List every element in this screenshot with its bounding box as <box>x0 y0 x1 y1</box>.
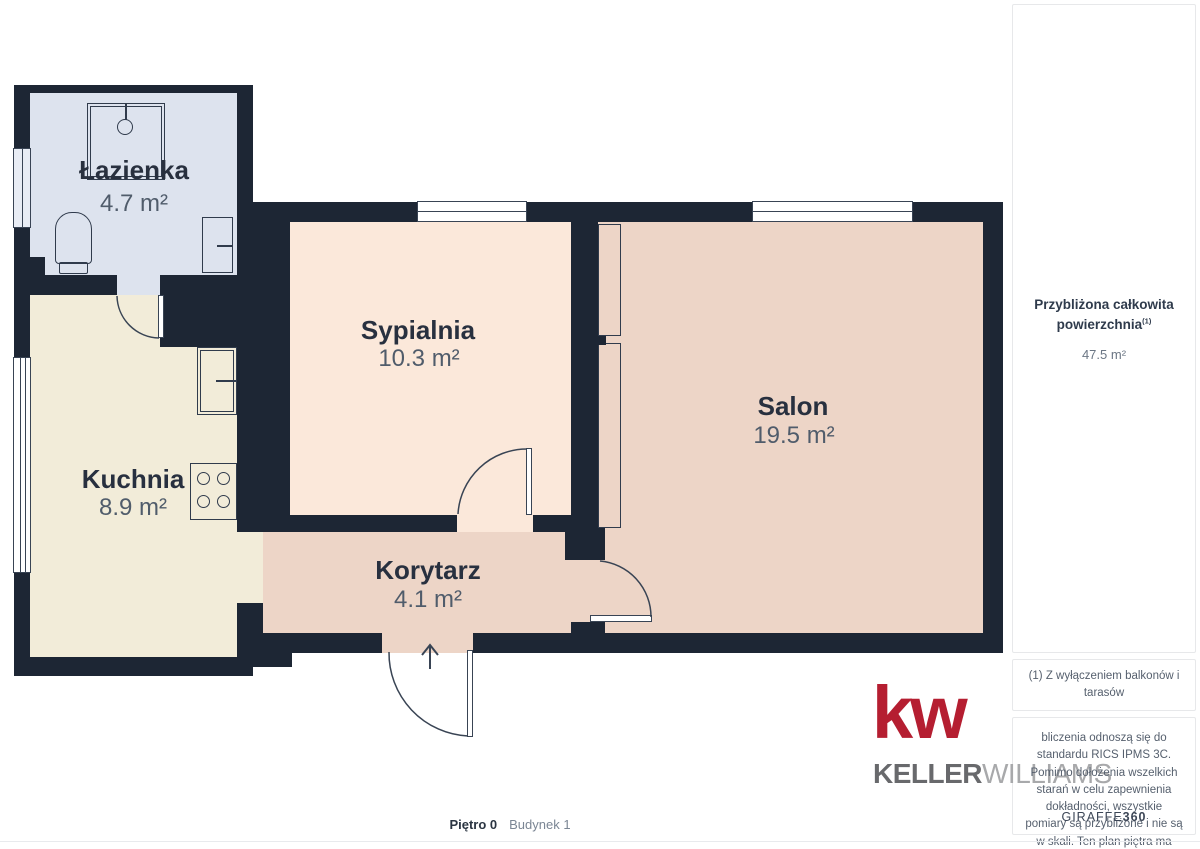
window-glass-line <box>753 211 912 212</box>
window-glass-line <box>25 358 26 572</box>
wall-segment <box>160 295 237 347</box>
door-leaf-entrance <box>467 650 473 737</box>
total-area-title: Przybliżona całkowita powierzchnia(1) <box>1034 295 1174 336</box>
disclaimer-content: bliczenia odnoszą się do standardu RICS … <box>1012 717 1196 835</box>
toilet-base <box>59 262 88 274</box>
floor-plan: Łazienka 4.7 m² Kuchnia 8.9 m² Sypialnia… <box>0 0 1010 800</box>
stove-burner <box>217 472 230 485</box>
footnote-text: (1) Z wyłączeniem balkonów i tarasów <box>1013 668 1195 703</box>
wall-segment <box>253 633 1003 653</box>
room-area-korytarz: 4.1 m² <box>394 588 462 612</box>
toilet <box>55 212 92 264</box>
giraffe-360-text: 360 <box>1123 810 1147 824</box>
disclaimer-text: bliczenia odnoszą się do standardu RICS … <box>1025 730 1183 849</box>
stove-burner <box>217 495 230 508</box>
door-leaf-bathroom <box>158 295 164 338</box>
doorway-bathroom-kitchen <box>117 275 160 295</box>
doorway-corridor-living <box>571 560 598 622</box>
wall-segment <box>593 336 606 345</box>
cabinet-handle <box>216 380 236 382</box>
kw-logo: kw <box>872 676 965 750</box>
bedroom-window <box>417 201 527 222</box>
room-label-sypialnia: Sypialnia <box>361 317 475 343</box>
door-arc-entrance <box>389 652 468 736</box>
room-label-salon: Salon <box>758 393 829 419</box>
shower-head-icon <box>117 119 133 135</box>
bottom-divider <box>0 841 1200 842</box>
kitchen-cabinet <box>197 347 237 415</box>
wall-segment <box>983 202 1003 653</box>
living-room-window <box>752 201 913 222</box>
stove-burner <box>197 472 210 485</box>
building-label: Budynek 1 <box>509 817 570 832</box>
cabinet-handle <box>217 245 232 247</box>
window-glass-line <box>20 358 21 572</box>
wall-segment <box>237 202 290 532</box>
bathroom-window <box>13 148 31 228</box>
door-leaf-bedroom <box>526 448 532 515</box>
entrance-doorway <box>382 633 473 653</box>
stove <box>190 463 237 520</box>
total-area-card: Przybliżona całkowita powierzchnia(1) 47… <box>1012 4 1196 653</box>
room-label-lazienka: Łazienka <box>79 157 189 183</box>
window-glass-line <box>418 211 526 212</box>
giraffe-text: GIRAFFE <box>1061 810 1122 824</box>
wall-niche-panel <box>598 224 621 336</box>
room-label-kuchnia: Kuchnia <box>82 466 185 492</box>
room-area-salon: 19.5 m² <box>753 424 834 448</box>
room-label-korytarz: Korytarz <box>375 557 480 583</box>
room-area-lazienka: 4.7 m² <box>100 192 168 216</box>
total-area-value: 47.5 m² <box>1082 347 1126 362</box>
kitchen-window <box>13 357 31 573</box>
shower-head-stem <box>125 103 127 120</box>
stove-burner <box>197 495 210 508</box>
floor-plan-page: Łazienka 4.7 m² Kuchnia 8.9 m² Sypialnia… <box>0 0 1200 849</box>
window-glass-line <box>22 149 23 227</box>
footnote-card: (1) Z wyłączeniem balkonów i tarasów <box>1012 659 1196 711</box>
wall-niche-panel <box>598 343 621 528</box>
floor-label: Piętro 0 <box>449 817 497 832</box>
door-leaf-living <box>590 615 652 622</box>
wall-segment <box>571 622 605 635</box>
footer-bar: Piętro 0 Budynek 1 <box>0 817 1020 832</box>
room-area-kuchnia: 8.9 m² <box>99 496 167 520</box>
footnote-marker: (1) <box>1142 317 1151 326</box>
keller-text: KELLER <box>873 758 982 789</box>
opening-kitchen-corridor <box>237 532 263 603</box>
wall-segment <box>30 257 45 275</box>
giraffe360-brand: GIRAFFE360 <box>1012 810 1196 824</box>
wall-segment <box>571 222 598 522</box>
bathroom-cabinet <box>202 217 233 273</box>
room-area-sypialnia: 10.3 m² <box>378 347 459 371</box>
doorway-bedroom-corridor <box>457 515 533 532</box>
